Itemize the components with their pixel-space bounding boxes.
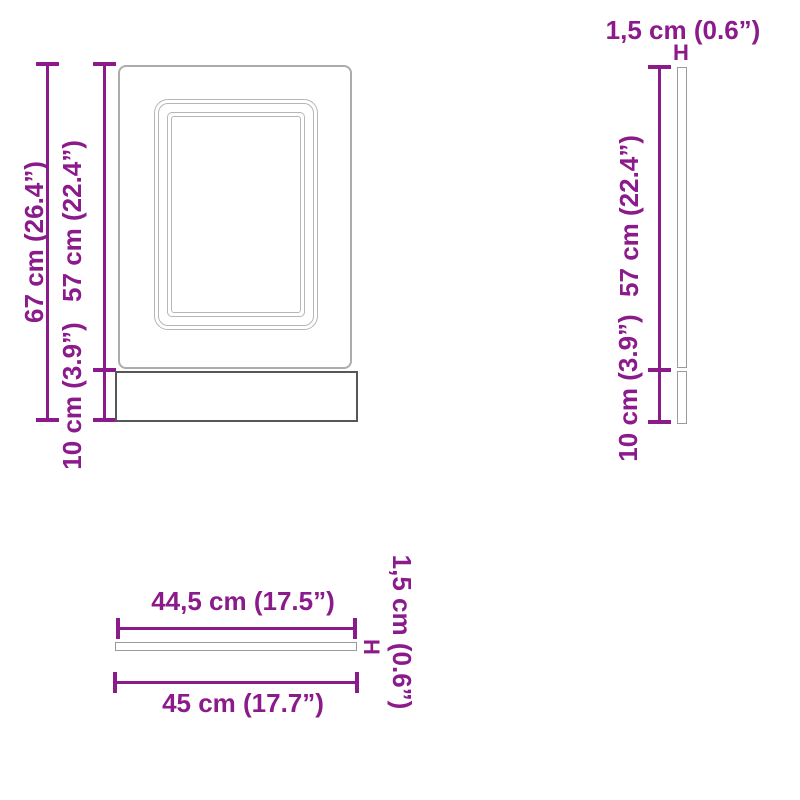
side-thickness-marker: H xyxy=(673,42,689,64)
top-total-width-cap-right xyxy=(355,672,359,693)
top-door-width-cap-right xyxy=(353,618,357,639)
top-thickness-label: 1,5 cm (0.6”) xyxy=(389,555,415,710)
front-total-dimension-cap-top xyxy=(36,62,59,66)
front-total-dimension-cap-bottom xyxy=(36,418,59,422)
front-split-dimension-cap-bottom xyxy=(93,418,116,422)
side-split-dimension-cap-bottom xyxy=(648,420,671,424)
front-split-dimension-cap-top xyxy=(93,62,116,66)
side-split-dimension-cap-top xyxy=(648,65,671,69)
top-door-width-label: 44,5 cm (17.5”) xyxy=(151,588,335,614)
side-door-height-label: 57 cm (22.4”) xyxy=(616,135,642,297)
top-total-width-cap-left xyxy=(113,672,117,693)
front-plinth-height-label: 10 cm (3.9”) xyxy=(59,322,85,469)
top-total-width-label: 45 cm (17.7”) xyxy=(162,690,324,716)
side-plinth-height-label: 10 cm (3.9”) xyxy=(615,314,641,461)
top-door-width-line xyxy=(118,627,355,630)
front-split-dimension-tick xyxy=(93,368,116,372)
front-door-height-label: 57 cm (22.4”) xyxy=(59,140,85,302)
top-total-width-line xyxy=(115,681,357,684)
top-door-width-cap-left xyxy=(116,618,120,639)
door-frame-inner-inner-line xyxy=(171,116,301,313)
side-panel-upper xyxy=(677,67,687,368)
top-panel-strip xyxy=(115,642,357,651)
dimension-diagram: 67 cm (26.4”) 57 cm (22.4”) 10 cm (3.9”)… xyxy=(0,0,800,800)
plinth-panel xyxy=(115,371,358,422)
side-split-dimension-tick xyxy=(648,368,671,372)
top-thickness-marker: H xyxy=(360,639,382,655)
front-total-height-label: 67 cm (26.4”) xyxy=(21,161,47,323)
side-panel-lower xyxy=(677,371,687,424)
